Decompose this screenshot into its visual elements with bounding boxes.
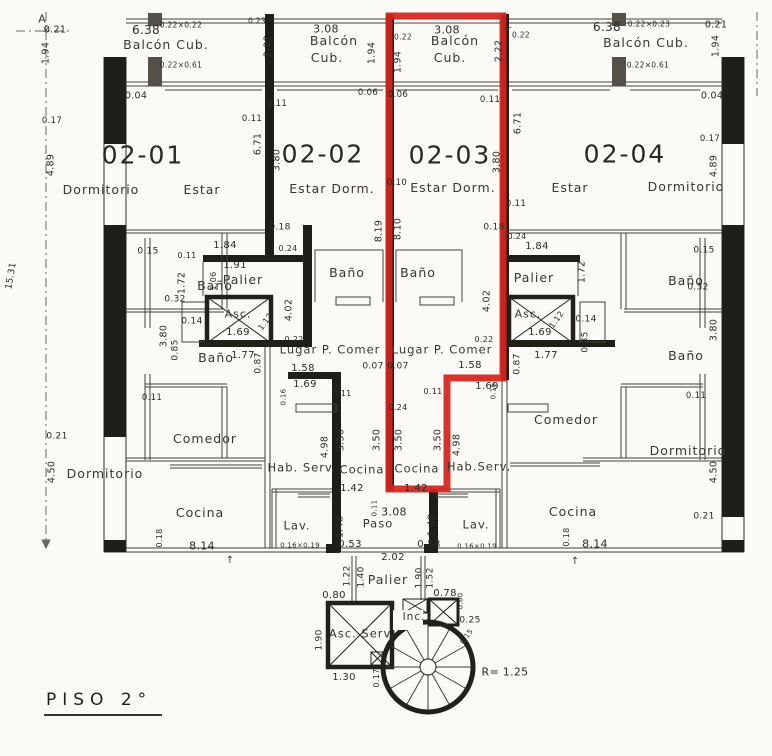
floor-title: PISO 2° [44,690,162,716]
thin-lines [104,19,744,552]
floor-plan-sheet: 02-0102-0202-0302-04Balcón Cub.BalcónCub… [0,0,772,756]
unit-02-03-highlight-outline [389,16,503,489]
floorplan-drawing [0,0,772,756]
walls [104,14,744,553]
